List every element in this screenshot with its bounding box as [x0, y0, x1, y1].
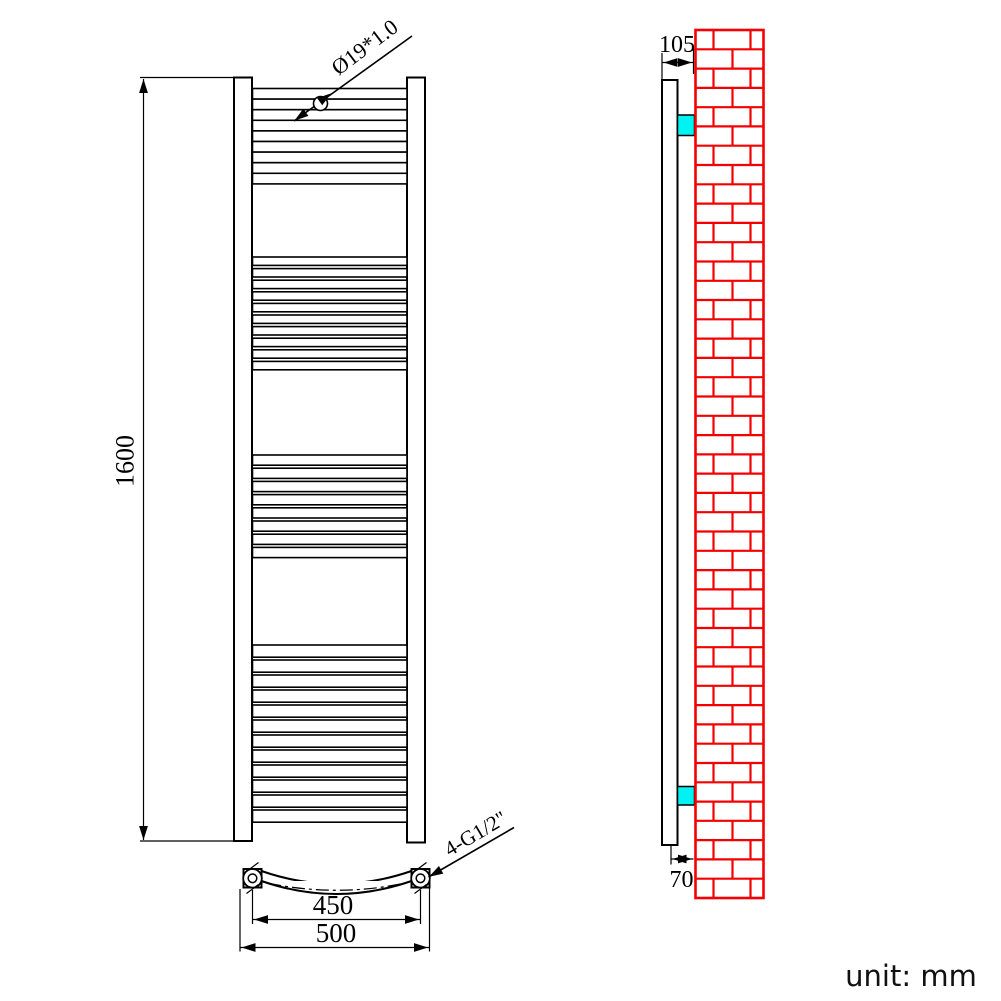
outer-width-label: 500 [316, 918, 357, 948]
rung [253, 468, 408, 478]
rung [253, 338, 408, 346]
rung [253, 645, 408, 657]
arrowhead [254, 915, 268, 924]
rung-group [253, 89, 408, 823]
rung [253, 495, 408, 505]
rung [253, 750, 408, 762]
rung [253, 315, 408, 323]
arrowhead [139, 826, 148, 840]
rung [253, 521, 408, 531]
arrowhead [414, 943, 428, 952]
arrowhead [242, 943, 256, 952]
wall-bracket [678, 787, 695, 806]
rung [253, 765, 408, 777]
left-fitting-inner-circle [248, 874, 257, 883]
radiator-drawing: 1600 Ø19*1.0 450 [0, 0, 1001, 1001]
rung [253, 720, 408, 732]
right-fitting-inner-circle [416, 874, 425, 883]
wall-outline [696, 30, 764, 898]
rung [253, 547, 408, 557]
rung [253, 163, 408, 174]
rung [253, 810, 408, 822]
arrowhead [678, 58, 692, 67]
rung [253, 795, 408, 807]
rung [253, 481, 408, 491]
rung [253, 120, 408, 131]
rung [253, 327, 408, 335]
left-vertical-tube [234, 78, 252, 842]
wall-offset-bottom-label: 70 [670, 867, 694, 893]
front-view: 1600 Ø19*1.0 [111, 14, 426, 842]
rung [253, 350, 408, 358]
rung [253, 690, 408, 702]
rung [253, 269, 408, 277]
rung [253, 735, 408, 747]
rung [253, 508, 408, 518]
rung [253, 705, 408, 717]
rung [253, 780, 408, 792]
rung [253, 455, 408, 465]
rung [253, 142, 408, 153]
side-tube-profile [662, 80, 678, 845]
rung [253, 99, 408, 110]
rung [253, 280, 408, 288]
inner-width-label: 450 [313, 890, 354, 920]
wall-offset-top-label: 105 [659, 32, 695, 58]
technical-drawing-page: 1600 Ø19*1.0 450 [0, 0, 1001, 1001]
brick-wall [696, 30, 764, 898]
unit-label: unit: mm [845, 959, 977, 993]
rung [253, 131, 408, 142]
rung [253, 292, 408, 300]
right-vertical-tube [407, 78, 425, 843]
rung [253, 303, 408, 311]
rung [253, 152, 408, 163]
arrowhead [139, 79, 148, 93]
rung [253, 89, 408, 100]
rung [253, 257, 408, 265]
rung [253, 660, 408, 672]
rung [253, 534, 408, 544]
wall-bracket [678, 115, 695, 136]
fitting-spec-label: 4-G1/2" [440, 806, 511, 861]
top-view-curved-rail: 450 500 4-G1/2" [240, 806, 514, 952]
arrowhead [664, 58, 678, 67]
rung [253, 675, 408, 687]
height-dimension-label: 1600 [111, 435, 140, 487]
rung [253, 110, 408, 121]
arrowhead [405, 915, 419, 924]
rung [253, 361, 408, 369]
rung [253, 173, 408, 184]
side-view: 105 70 [659, 30, 764, 898]
